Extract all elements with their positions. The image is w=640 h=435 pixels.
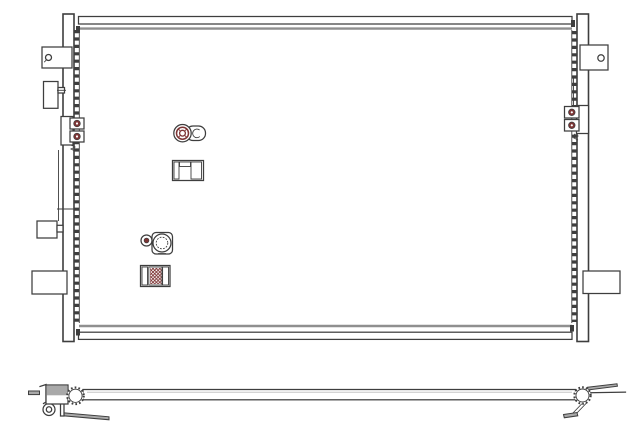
flange-port-outer — [153, 234, 171, 252]
bolt-center — [76, 135, 78, 137]
lower-bracket-right — [583, 271, 620, 294]
mount-plate-edge — [40, 385, 46, 404]
section-outline — [173, 161, 204, 181]
bracket-tab — [57, 225, 63, 232]
mount-block-shade — [47, 386, 68, 396]
left-pin — [29, 391, 40, 395]
bolt-center — [76, 122, 78, 124]
upper-port-fitting — [174, 125, 206, 142]
section-accent-lattice — [150, 268, 162, 284]
mount-bracket-top-right — [580, 45, 608, 70]
right-foot — [564, 413, 578, 418]
tick-bottom-right — [570, 325, 574, 332]
tick-top-right — [571, 20, 575, 27]
mount-lobe — [43, 404, 55, 416]
right-rod — [588, 384, 618, 390]
flange-bolt — [144, 238, 149, 243]
right-rod-line — [589, 392, 626, 393]
mid-bracket-left — [37, 221, 63, 238]
drawing-canvas — [0, 0, 640, 435]
bottom-tube — [79, 332, 573, 339]
left-foot — [63, 413, 109, 420]
upper-section-fitting — [173, 161, 204, 181]
lower-section-fitting — [141, 266, 171, 287]
bolt-center — [571, 124, 573, 126]
bracket-body — [42, 47, 72, 68]
bolt-center — [571, 111, 573, 113]
mount-bracket-top-left — [42, 47, 72, 68]
condenser-drawing — [0, 0, 640, 435]
top-tube — [79, 17, 573, 25]
bracket-body — [37, 221, 57, 238]
tick-top-left — [76, 26, 80, 33]
side-view — [29, 384, 626, 420]
tube-profile — [83, 390, 576, 400]
front-view — [32, 14, 620, 342]
bracket-body — [44, 82, 59, 109]
lower-flange-fitting — [141, 233, 173, 255]
lower-bracket-left — [32, 271, 67, 294]
tick-bottom-left — [76, 329, 80, 336]
